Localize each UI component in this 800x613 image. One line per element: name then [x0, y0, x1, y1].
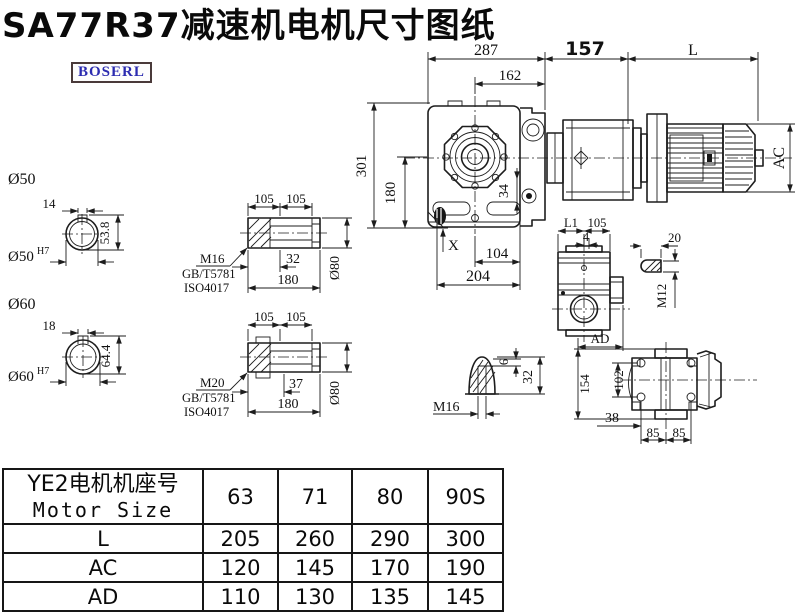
table-cell: 120 [203, 553, 278, 582]
table-cell: 260 [278, 524, 352, 553]
table-cell: 130 [278, 582, 352, 611]
label-std-iso-b: ISO4017 [184, 405, 229, 419]
dim-154: 154 [577, 374, 592, 394]
plug-detail: M16 6 32 [433, 348, 545, 419]
shaft-section-60: Ø60 18 64.4 Ø60 H7 [8, 296, 126, 386]
table-cell: 145 [428, 582, 503, 611]
dim-180: 180 [383, 182, 399, 205]
dim-M16-plug: M16 [433, 400, 459, 415]
table-row-label: L [3, 524, 203, 553]
table-cell: 190 [428, 553, 503, 582]
table-col-63: 63 [203, 469, 278, 524]
dim-AD: AD [591, 331, 610, 346]
dim-20: 20 [668, 230, 681, 245]
dim-204: 204 [466, 268, 490, 285]
table-cell: 135 [352, 582, 428, 611]
table-row-label: AD [3, 582, 203, 611]
table-header-label: YE2电机机座号 Motor Size [3, 469, 203, 524]
gearbox-side-view: L1 105 4 AD [552, 216, 630, 351]
table-cell: 170 [352, 553, 428, 582]
dim-dia80b: Ø80 [328, 381, 343, 405]
dim-53-8: 53.8 [97, 222, 112, 245]
label-std-iso-a: ISO4017 [184, 281, 229, 295]
dim-37: 37 [289, 377, 303, 392]
dim-6: 6 [497, 359, 511, 365]
table-row-label: AC [3, 553, 203, 582]
table-col-90s: 90S [428, 469, 503, 524]
motor-adapter [547, 120, 647, 200]
dim-105e: 105 [588, 216, 607, 230]
dim-287: 287 [474, 42, 498, 59]
dim-105d: 105 [286, 309, 306, 324]
dim-L: L [688, 42, 698, 59]
label-bore60: Ø60 [8, 369, 34, 385]
gearbox-front-view [428, 96, 545, 234]
dim-105a: 105 [254, 191, 274, 206]
dim-102: 102 [611, 370, 626, 390]
table-cell: 205 [203, 524, 278, 553]
dim-X: X [448, 238, 459, 254]
shaft-section-50: Ø50 14 53.8 Ø50 H7 [8, 171, 124, 266]
dim-32b: 32 [521, 370, 536, 384]
dim-L1: L1 [564, 216, 578, 230]
label-std-gb-a: GB/T5781 [182, 267, 235, 281]
dim-162: 162 [499, 68, 522, 84]
dim-180a: 180 [278, 273, 299, 288]
table-header-cn: YE2电机机座号 [4, 472, 202, 498]
dim-104: 104 [486, 246, 509, 262]
label-bore50-tol: H7 [37, 246, 49, 257]
table-row-L: L 205 260 290 300 [3, 524, 503, 553]
label-bolt-m16: M16 [200, 251, 225, 266]
key-pin-detail: 20 M12 [630, 230, 681, 308]
shaft-sleeve-top: 105 105 32 180 Ø80 M16 GB/T5781 ISO4017 [182, 191, 352, 295]
table-cell: 110 [203, 582, 278, 611]
label-std-gb-b: GB/T5781 [182, 391, 235, 405]
dim-key14: 14 [43, 196, 57, 211]
dim-4: 4 [583, 230, 590, 244]
label-bore50: Ø50 [8, 249, 34, 265]
table-cell: 290 [352, 524, 428, 553]
motor-rear-view: 154 102 38 85 85 [574, 342, 757, 444]
dim-105c: 105 [254, 309, 274, 324]
dim-85b: 85 [673, 425, 686, 440]
label-bore60-tol: H7 [37, 366, 49, 377]
table-row-AC: AC 120 145 170 190 [3, 553, 503, 582]
table-col-80: 80 [352, 469, 428, 524]
dim-AC: AC [771, 147, 788, 169]
dim-85a: 85 [647, 425, 660, 440]
dim-38: 38 [605, 411, 619, 426]
motor-size-table: YE2电机机座号 Motor Size 63 71 80 90S L 205 2… [2, 468, 504, 612]
dim-key18: 18 [43, 318, 56, 333]
dim-157: 157 [565, 38, 605, 60]
dim-180b: 180 [278, 397, 299, 412]
label-dia50: Ø50 [8, 171, 36, 188]
table-header-row: YE2电机机座号 Motor Size 63 71 80 90S [3, 469, 503, 524]
table-cell: 145 [278, 553, 352, 582]
dim-dia80a: Ø80 [328, 256, 343, 280]
label-dia60: Ø60 [8, 296, 36, 313]
page: SA77R37减速机电机尺寸图纸 BOSERL [0, 0, 800, 613]
label-bolt-m20: M20 [200, 375, 225, 390]
table-cell: 300 [428, 524, 503, 553]
table-col-71: 71 [278, 469, 352, 524]
table-header-en: Motor Size [4, 498, 202, 522]
dim-32: 32 [286, 252, 300, 267]
shaft-sleeve-bottom: 105 105 37 180 Ø80 M20 GB/T5781 ISO4017 [182, 309, 352, 419]
table-row-AD: AD 110 130 135 145 [3, 582, 503, 611]
dim-301: 301 [354, 155, 370, 178]
dim-105b: 105 [286, 191, 306, 206]
dim-34: 34 [497, 184, 512, 198]
dim-M12: M12 [654, 284, 669, 309]
